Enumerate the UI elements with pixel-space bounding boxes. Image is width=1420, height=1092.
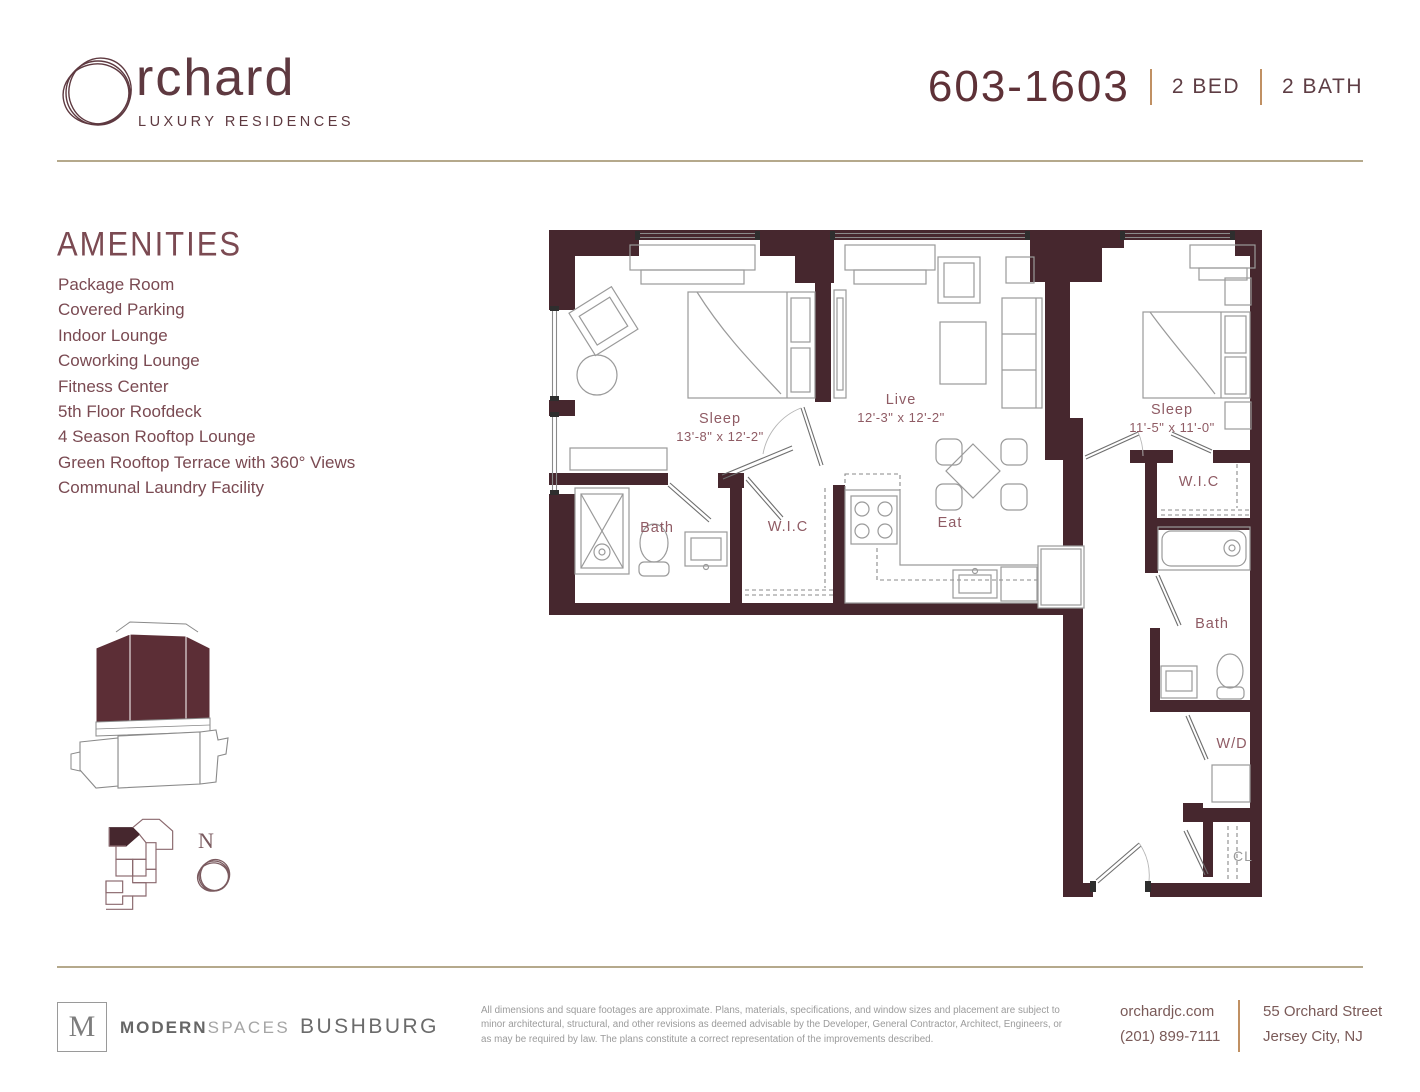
unit-baths: 2 BATH: [1282, 75, 1363, 99]
room-dims-sleep-left: 13'-8" x 12'-2": [676, 429, 763, 444]
logo-o-icon: [57, 52, 139, 134]
legal-disclaimer: All dimensions and square footages are a…: [481, 1004, 1069, 1047]
developer-name: BUSHBURG: [300, 1015, 439, 1039]
amenity-item: Covered Parking: [58, 297, 355, 322]
amenity-item: 5th Floor Roofdeck: [58, 399, 355, 424]
room-label-sleep-right: Sleep: [1151, 402, 1193, 418]
separator-line: [1150, 69, 1152, 105]
room-label-wd: W/D: [1216, 736, 1247, 752]
modernspaces-logo-initial: M: [69, 1010, 96, 1044]
floorplan-flyer-page: rchard LUXURY RESIDENCES 603-1603 2 BED …: [0, 0, 1420, 1092]
website: orchardjc.com: [1120, 1000, 1220, 1025]
address-street: 55 Orchard Street: [1263, 1000, 1382, 1025]
unit-beds: 2 BED: [1172, 75, 1240, 99]
keyplan-diagram: [96, 816, 206, 921]
room-label-wic-left: W.I.C: [768, 519, 808, 535]
room-label-bath-right: Bath: [1195, 616, 1229, 632]
amenities-list: Package Room Covered Parking Indoor Loun…: [58, 272, 355, 501]
address-city: Jersey City, NJ: [1263, 1025, 1382, 1050]
amenity-item: 4 Season Rooftop Lounge: [58, 424, 355, 449]
unit-number: 603-1603: [928, 62, 1130, 112]
amenities-heading: AMENITIES: [57, 224, 242, 264]
broker-name: MODERNSPACES: [120, 1018, 290, 1038]
room-dims-sleep-right: 11'-5" x 11'-0": [1129, 420, 1215, 435]
brand-tagline: LUXURY RESIDENCES: [138, 114, 354, 130]
broker-name-bold: MODERN: [120, 1018, 208, 1037]
room-label-bath-left: Bath: [640, 520, 674, 536]
room-label-sleep-left: Sleep: [699, 411, 741, 427]
address-block: 55 Orchard Street Jersey City, NJ: [1263, 1000, 1382, 1050]
amenity-item: Green Rooftop Terrace with 360° Views: [58, 450, 355, 475]
amenity-item: Communal Laundry Facility: [58, 475, 355, 500]
separator-line: [1238, 1000, 1240, 1052]
footer-rule: [57, 966, 1363, 968]
phone: (201) 899-7111: [1120, 1025, 1220, 1050]
room-label-live: Live: [886, 392, 917, 408]
amenity-item: Coworking Lounge: [58, 348, 355, 373]
brand-wordmark: rchard: [136, 48, 295, 108]
building-illustration: [66, 612, 246, 807]
contact-block: orchardjc.com (201) 899-7111: [1120, 1000, 1220, 1050]
amenity-item: Fitness Center: [58, 374, 355, 399]
room-label-eat: Eat: [938, 515, 963, 531]
room-label-wic-right: W.I.C: [1179, 474, 1219, 490]
north-compass-icon: [192, 854, 236, 903]
floorplan-drawing: Sleep 13'-8" x 12'-2" Live 12'-3" x 12'-…: [549, 230, 1262, 902]
modernspaces-logo: M: [57, 1002, 107, 1052]
broker-name-light: SPACES: [208, 1018, 291, 1037]
header-rule: [57, 160, 1363, 162]
separator-line: [1260, 69, 1262, 105]
unit-header: 603-1603 2 BED 2 BATH: [928, 62, 1363, 112]
amenity-item: Package Room: [58, 272, 355, 297]
amenity-item: Indoor Lounge: [58, 323, 355, 348]
room-dims-live: 12'-3" x 12'-2": [857, 410, 944, 425]
north-label: N: [198, 828, 214, 854]
room-label-cl: CL: [1233, 848, 1253, 864]
